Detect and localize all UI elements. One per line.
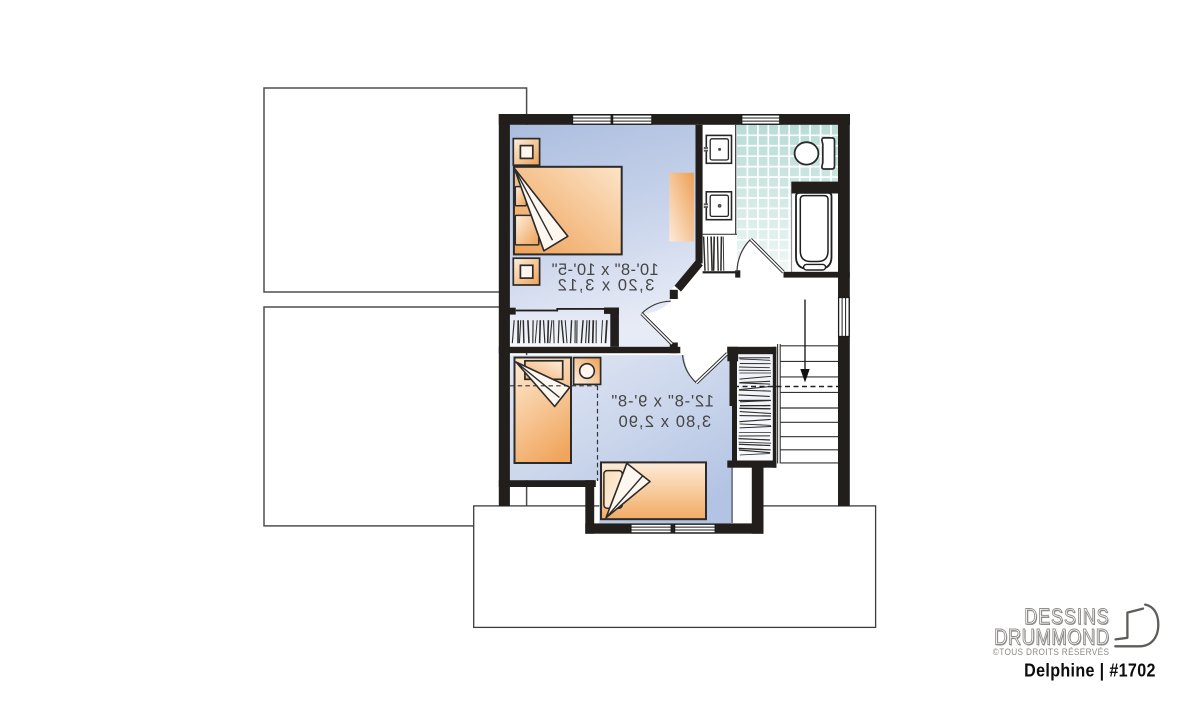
- svg-text:3,20 x 3,12: 3,20 x 3,12: [556, 277, 654, 295]
- svg-text:©TOUS DROITS RÉSERVÉS: ©TOUS DROITS RÉSERVÉS: [993, 646, 1110, 657]
- svg-text:12'-8" x 9'-8": 12'-8" x 9'-8": [611, 393, 715, 411]
- svg-text:3,80 x 2,90: 3,80 x 2,90: [617, 413, 711, 431]
- svg-text:Delphine | #1702: Delphine | #1702: [1024, 659, 1156, 680]
